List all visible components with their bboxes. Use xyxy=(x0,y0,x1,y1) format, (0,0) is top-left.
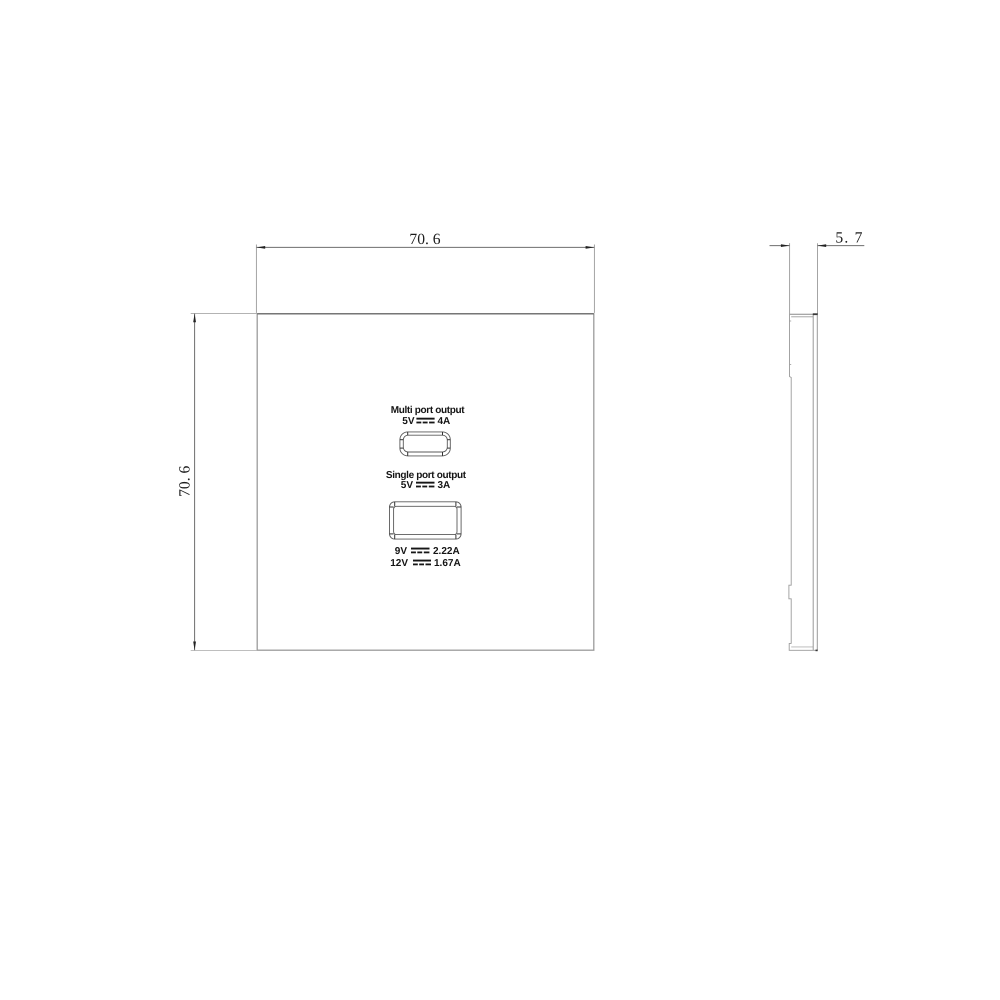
svg-text:1.67A: 1.67A xyxy=(434,558,461,569)
svg-text:9V: 9V xyxy=(395,546,408,557)
svg-text:5V: 5V xyxy=(401,480,414,491)
svg-text:5V: 5V xyxy=(402,416,415,427)
svg-text:70. 6: 70. 6 xyxy=(409,231,440,248)
svg-text:70. 6: 70. 6 xyxy=(177,466,194,497)
svg-text:Multi port output: Multi port output xyxy=(391,405,465,416)
svg-text:2.22A: 2.22A xyxy=(433,546,460,557)
svg-text:4A: 4A xyxy=(438,416,451,427)
svg-text:5. 7: 5. 7 xyxy=(835,230,863,247)
svg-text:3A: 3A xyxy=(438,480,451,491)
svg-text:Single port output: Single port output xyxy=(386,470,467,481)
svg-text:12V: 12V xyxy=(390,558,408,569)
